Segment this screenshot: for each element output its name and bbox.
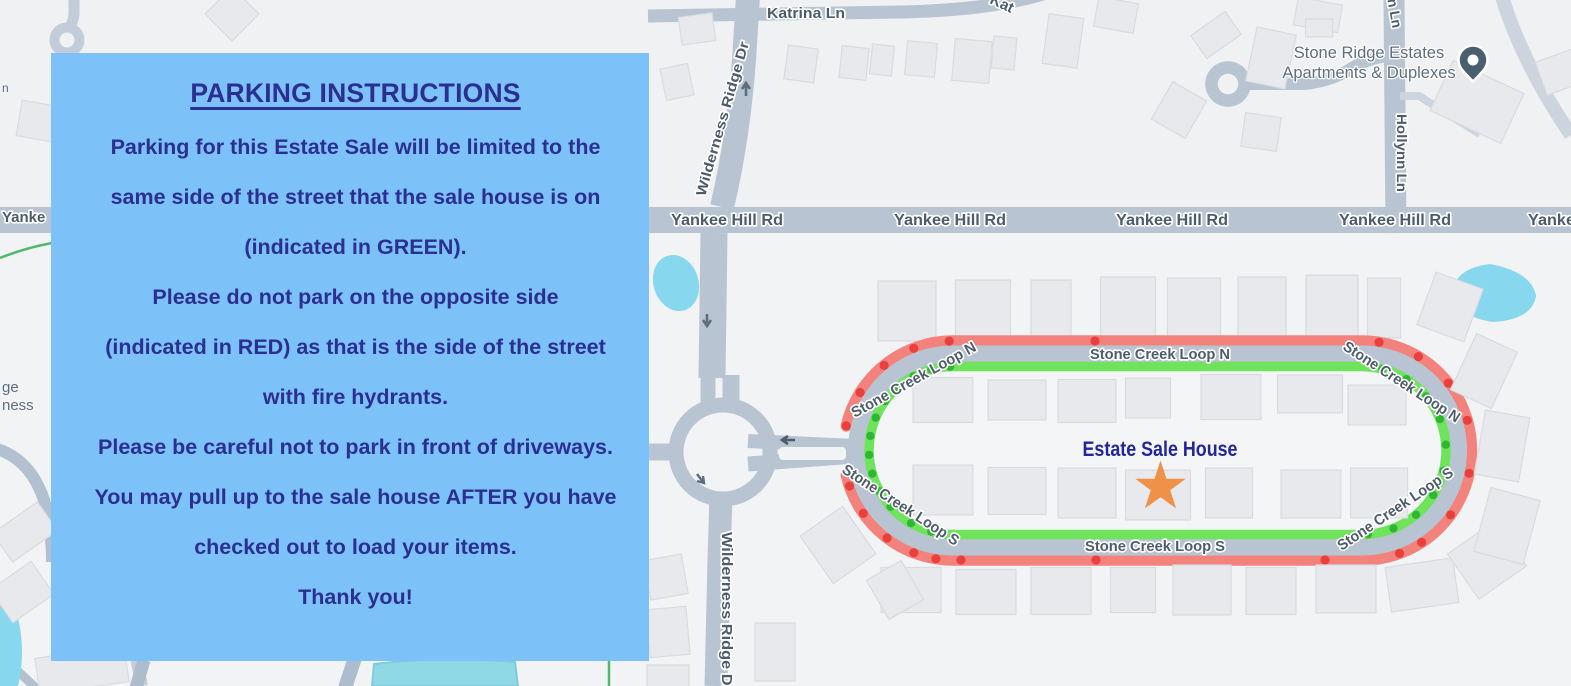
svg-text:Apartments & Duplexes: Apartments & Duplexes xyxy=(1282,64,1455,82)
svg-text:Yankee Hill Rd: Yankee Hill Rd xyxy=(894,212,1006,229)
svg-text:Katrina Ln: Katrina Ln xyxy=(767,5,845,22)
svg-text:Hollynn Ln: Hollynn Ln xyxy=(1394,114,1410,192)
svg-text:n: n xyxy=(2,81,9,95)
svg-text:Yankee Hill Rd: Yankee Hill Rd xyxy=(1116,212,1228,229)
svg-text:ness: ness xyxy=(2,397,34,414)
svg-text:Wilderness Ridge Dr: Wilderness Ridge Dr xyxy=(718,532,734,686)
svg-text:Yanke: Yanke xyxy=(2,209,45,226)
svg-text:Stone Creek Loop S: Stone Creek Loop S xyxy=(1085,538,1225,555)
svg-text:Stone Ridge Estates: Stone Ridge Estates xyxy=(1294,44,1444,62)
svg-text:Yankee Hill Rd: Yankee Hill Rd xyxy=(671,212,783,229)
svg-text:Stone Creek Loop N: Stone Creek Loop N xyxy=(1090,346,1230,363)
svg-text:Estate Sale House: Estate Sale House xyxy=(1083,437,1238,461)
svg-text:Yankee Hill Rd: Yankee Hill Rd xyxy=(1339,212,1451,229)
svg-text:ge: ge xyxy=(2,379,19,396)
svg-text:Yankee Hill Rd: Yankee Hill Rd xyxy=(1528,212,1571,229)
